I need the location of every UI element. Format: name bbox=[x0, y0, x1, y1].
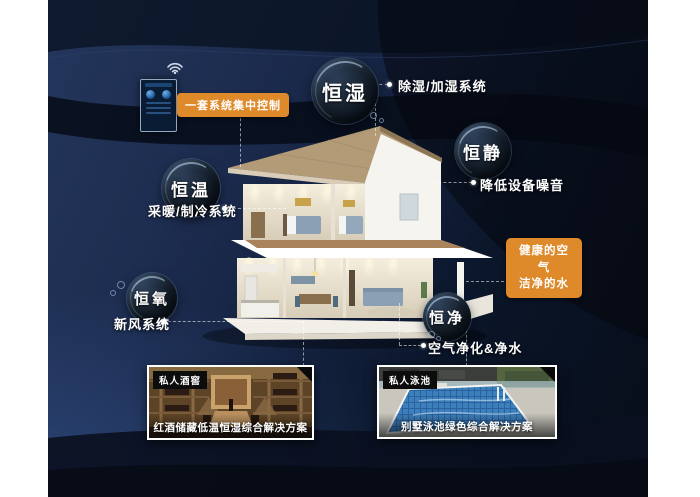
connector-dot bbox=[387, 82, 392, 87]
decor-bubble bbox=[117, 281, 125, 289]
connector-line bbox=[168, 321, 304, 322]
pool-tag: 私人泳池 bbox=[383, 371, 437, 389]
corner-ribbon bbox=[297, 367, 312, 382]
health-highlight-box: 健康的空气 洁净的水 bbox=[506, 238, 582, 298]
feature-bubble-quiet: 恒静 bbox=[455, 123, 511, 179]
pool-card: 私人泳池 别墅泳池绿色综合解决方案 bbox=[377, 365, 557, 439]
decor-bubble bbox=[110, 290, 116, 296]
wifi-icon bbox=[166, 60, 184, 74]
decor-bubble bbox=[370, 112, 377, 119]
connector-dot bbox=[421, 343, 426, 348]
smart-control-panel bbox=[140, 79, 177, 132]
decor-bubble bbox=[379, 118, 384, 123]
wine-cellar-caption: 红酒储藏低温恒湿综合解决方案 bbox=[149, 420, 312, 435]
wine-cellar-tag: 私人酒窖 bbox=[153, 371, 207, 389]
connector-dot bbox=[222, 206, 227, 211]
decor-bubble bbox=[428, 331, 435, 338]
highlight-line2: 洁净的水 bbox=[519, 278, 569, 290]
pool-caption: 别墅泳池绿色综合解决方案 bbox=[379, 419, 555, 434]
central-control-label: 一套系统集中控制 bbox=[177, 93, 289, 117]
highlight-line1: 健康的空气 bbox=[519, 245, 569, 274]
feature-note-purity: 空气净化&净水 bbox=[428, 338, 522, 357]
connector-line bbox=[399, 345, 421, 346]
feature-bubble-humidity: 恒湿 bbox=[312, 58, 378, 124]
connector-dot bbox=[471, 180, 476, 185]
feature-note-quiet: 降低设备噪音 bbox=[480, 175, 564, 194]
connector-line bbox=[303, 321, 304, 366]
connector-dot bbox=[161, 319, 166, 324]
connector-line bbox=[240, 113, 241, 167]
wine-cellar-card: 私人酒窖 红酒储藏低温恒湿综合解决方案 bbox=[147, 365, 314, 440]
corner-ribbon bbox=[540, 367, 555, 382]
connector-line bbox=[428, 182, 472, 183]
infographic-poster: 一套系统集中控制 恒湿 除湿/加湿系统 恒静 降低设备噪音 恒温 采暖/制冷系统… bbox=[0, 0, 700, 497]
feature-note-humidity: 除湿/加湿系统 bbox=[398, 76, 487, 95]
connector-line bbox=[399, 303, 400, 345]
